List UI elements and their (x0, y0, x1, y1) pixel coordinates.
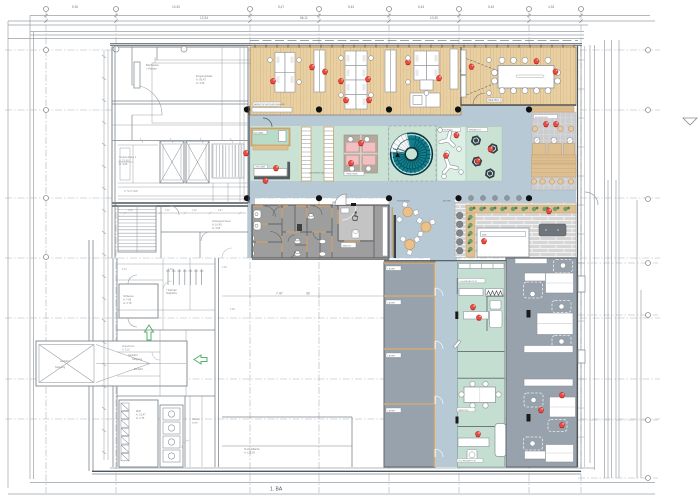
svg-text:A: 95,43: A: 95,43 (196, 78, 206, 82)
svg-text:Gra.REDAKTION: Gra.REDAKTION (459, 460, 476, 463)
svg-text:A: 118,20: A: 118,20 (244, 450, 255, 454)
svg-text:H: 2,76: H: 2,76 (123, 301, 132, 305)
svg-text:30: 30 (306, 292, 310, 296)
svg-text:1,48: 1,48 (168, 268, 173, 271)
svg-text:1,20: 1,20 (165, 210, 170, 212)
svg-text:LAGER: LAGER (388, 354, 396, 357)
svg-text:BREAKOUT: BREAKOUT (469, 129, 482, 132)
svg-text:5,47: 5,47 (278, 5, 284, 9)
svg-text:2,10: 2,10 (122, 268, 127, 271)
svg-text:4,33: 4,33 (548, 5, 554, 9)
svg-text:10,30: 10,30 (430, 16, 438, 20)
svg-text:1,35: 1,35 (128, 210, 133, 212)
svg-text:ARBEITSPLATZGROSSRAUM: ARBEITSPLATZGROSSRAUM (254, 103, 285, 106)
svg-text:7,47: 7,47 (276, 292, 283, 296)
svg-text:KITCHEN: KITCHEN (254, 132, 264, 134)
svg-text:THINKTANK: THINKTANK (346, 173, 359, 176)
svg-text:1,00: 1,00 (222, 266, 227, 269)
svg-text:BAR: BAR (482, 234, 487, 237)
svg-text:5,43: 5,43 (488, 5, 494, 9)
svg-text:BISTRO: BISTRO (443, 201, 451, 203)
svg-text:4,90: 4,90 (230, 308, 235, 311)
svg-text:Briefkasten: Briefkasten (146, 63, 160, 67)
svg-text:17 St 17,6/28: 17 St 17,6/28 (124, 190, 138, 193)
svg-text:A: 21,47: A: 21,47 (136, 412, 146, 416)
svg-text:Müll: Müll (136, 409, 141, 413)
svg-text:H: 3,05: H: 3,05 (119, 162, 128, 166)
svg-text:Einfahrt: Einfahrt (134, 367, 143, 371)
svg-text:Ausfahrt: Ausfahrt (128, 353, 138, 357)
svg-text:CHILL/BAR: CHILL/BAR (255, 166, 266, 169)
svg-text:1,20: 1,20 (192, 210, 197, 212)
svg-text:MEETING: MEETING (459, 410, 469, 412)
svg-text:A: 9,10: A: 9,10 (122, 348, 130, 351)
svg-text:H: 3,05: H: 3,05 (196, 81, 205, 85)
svg-text:H: 3,05: H: 3,05 (212, 226, 221, 230)
svg-text:2,07: 2,07 (218, 210, 223, 212)
svg-text:Steigung: Steigung (55, 365, 66, 369)
svg-text:5,43: 5,43 (348, 5, 354, 9)
svg-text:Technikfläche: Technikfläche (244, 447, 260, 451)
svg-text:Ausfahrt: Ausfahrt (60, 359, 70, 363)
svg-text:LAGER: LAGER (388, 409, 396, 412)
svg-text:Chd.REDAKTION: Chd.REDAKTION (460, 280, 478, 283)
svg-text:Aufzugsvorraum: Aufzugsvorraum (212, 219, 231, 223)
svg-text:A: 16,45: A: 16,45 (212, 222, 222, 226)
svg-text:MEETING 1: MEETING 1 (488, 99, 502, 102)
svg-text:LAGER: LAGER (388, 301, 396, 304)
svg-text:Eingangshalle: Eingangshalle (196, 74, 213, 78)
svg-text:LAGER/REGAL: LAGER/REGAL (309, 172, 325, 175)
svg-text:LAGER: LAGER (388, 267, 396, 270)
svg-text:WASCHT.: WASCHT. (343, 244, 352, 247)
svg-text:56,11: 56,11 (300, 16, 308, 20)
svg-text:Steigung: Steigung (132, 357, 143, 361)
svg-text:+ Hänger: + Hänger (146, 66, 157, 70)
svg-text:5,30: 5,30 (72, 5, 78, 9)
svg-text:H: 2,76: H: 2,76 (136, 416, 145, 420)
svg-text:5,43: 5,43 (418, 5, 424, 9)
svg-text:1. BA: 1. BA (270, 487, 283, 493)
svg-text:Treppenhaus 1: Treppenhaus 1 (119, 155, 137, 159)
svg-text:FLEXDESKS: FLEXDESKS (535, 117, 548, 119)
svg-text:techn.: techn. (192, 421, 199, 424)
svg-text:12,34: 12,34 (200, 16, 208, 20)
svg-text:Stellplätze: Stellplätze (166, 292, 178, 295)
svg-text:A: 7,66: A: 7,66 (123, 297, 132, 301)
svg-text:10,30: 10,30 (172, 5, 180, 9)
svg-text:Schleuse: Schleuse (123, 294, 134, 298)
